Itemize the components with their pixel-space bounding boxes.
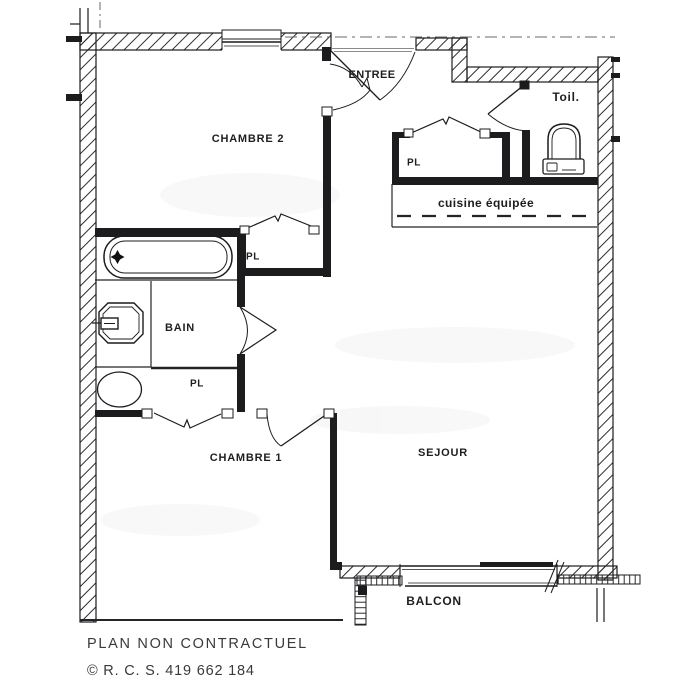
plan-disclaimer-text: PLAN NON CONTRACTUEL xyxy=(87,636,308,652)
room-label-closet-bain: PL xyxy=(190,379,204,390)
kitchen-top-wall xyxy=(392,177,598,185)
axis-lines xyxy=(100,2,615,37)
bathtub-faucet-icon xyxy=(111,250,125,264)
sejour-left-wall-foot xyxy=(330,562,342,570)
toilet-top-wall xyxy=(467,67,598,82)
entry-right-wall-stub xyxy=(452,38,467,82)
room-label-bain: BAIN xyxy=(165,322,195,334)
entrance-threshold xyxy=(332,49,414,52)
room-label-entree: ENTREE xyxy=(348,69,395,81)
entry-closet-bifold-door xyxy=(409,117,483,134)
bain-right-wall-lower xyxy=(237,354,245,412)
room-label-chambre1: CHAMBRE 1 xyxy=(210,452,283,464)
chambre2-right-wall xyxy=(323,112,331,277)
closet-bain-bifold-door xyxy=(154,413,221,428)
bain-door xyxy=(240,307,276,354)
room-label-balcon: BALCON xyxy=(406,594,462,608)
entry-closet-left-wall xyxy=(392,132,399,184)
window-top xyxy=(222,30,281,51)
entrance-jamb xyxy=(322,47,331,61)
railing-post xyxy=(358,586,367,595)
closet2-bottom-wall xyxy=(239,268,330,276)
floor-plan-page: ENTREE Toil. CHAMBRE 2 PL cuisine équipé… xyxy=(0,0,700,700)
right-wall xyxy=(598,57,613,580)
thin-lines xyxy=(80,184,597,620)
bain-right-wall-upper xyxy=(237,237,245,307)
balcony-railing xyxy=(355,575,640,625)
room-label-cuisine: cuisine équipée xyxy=(438,196,534,210)
interior-walls xyxy=(95,47,598,570)
floor-plan-canvas xyxy=(0,0,700,700)
doors xyxy=(154,51,527,446)
washbasin-icon xyxy=(92,303,143,343)
room-label-sejour: SEJOUR xyxy=(418,447,468,459)
top-wall xyxy=(80,33,331,50)
sejour-left-wall xyxy=(330,413,337,570)
balcony-bay-window xyxy=(400,560,564,593)
room-label-chambre2: CHAMBRE 2 xyxy=(212,133,285,145)
plan-registration-text: © R. C. S. 419 662 184 xyxy=(87,663,255,679)
fixtures xyxy=(92,124,584,407)
shaft-wall-right xyxy=(522,130,530,182)
toilet-door xyxy=(488,85,527,131)
shaft-wall-left xyxy=(502,132,510,182)
toilet-icon xyxy=(543,124,584,174)
left-wall xyxy=(80,33,96,622)
washing-machine-icon xyxy=(98,372,142,407)
bathtub-icon xyxy=(104,236,232,278)
room-label-closet-entry: PL xyxy=(407,158,421,169)
room-label-toilet: Toil. xyxy=(552,90,579,104)
room-label-closet-chambre2: PL xyxy=(246,252,260,263)
